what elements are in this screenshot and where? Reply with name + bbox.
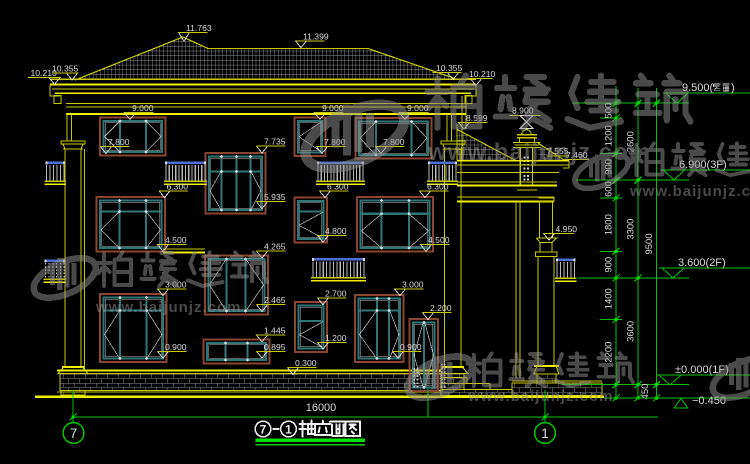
svg-text:10.355: 10.355 [436, 63, 463, 73]
svg-text:7: 7 [70, 426, 78, 441]
svg-text:www.baijunjz.com: www.baijunjz.com [629, 183, 750, 200]
svg-text:6.300: 6.300 [327, 181, 349, 191]
svg-text:10.355: 10.355 [52, 64, 79, 74]
svg-text:3300: 3300 [626, 219, 637, 240]
svg-text:2.465: 2.465 [264, 295, 286, 305]
svg-text:0.895: 0.895 [264, 342, 286, 352]
svg-text:7: 7 [260, 423, 267, 437]
svg-text:4.800: 4.800 [325, 226, 347, 236]
svg-text:6.300: 6.300 [167, 181, 189, 191]
svg-text:0.900: 0.900 [165, 342, 187, 352]
svg-text:3600: 3600 [626, 321, 637, 342]
svg-text:9500: 9500 [644, 233, 655, 254]
svg-text:4.500: 4.500 [165, 235, 187, 245]
svg-text:2.200: 2.200 [430, 303, 452, 313]
svg-text:3.000: 3.000 [402, 279, 424, 289]
svg-text:11.763: 11.763 [186, 23, 212, 33]
svg-text:450: 450 [640, 384, 651, 400]
svg-text:1400: 1400 [604, 288, 615, 309]
svg-text:7.800: 7.800 [108, 137, 130, 147]
svg-text:5.935: 5.935 [264, 192, 286, 202]
svg-text:0.900: 0.900 [400, 342, 422, 352]
svg-text:1: 1 [285, 423, 292, 437]
svg-text:1800: 1800 [604, 214, 615, 235]
svg-text:0.300: 0.300 [295, 358, 317, 368]
svg-text:9.000: 9.000 [132, 103, 154, 113]
svg-text:16000: 16000 [306, 402, 337, 414]
svg-text:): ) [731, 82, 735, 94]
svg-text:6.300: 6.300 [427, 181, 449, 191]
svg-text:2.700: 2.700 [325, 288, 347, 298]
svg-text:1.200: 1.200 [325, 333, 347, 343]
svg-text:10.210: 10.210 [469, 69, 496, 79]
svg-text:1.445: 1.445 [264, 326, 286, 336]
svg-text:4.265: 4.265 [264, 242, 286, 252]
svg-text:3.600(2F): 3.600(2F) [678, 257, 726, 269]
svg-text:11.399: 11.399 [303, 31, 329, 41]
svg-text:www.baijunjz.com: www.baijunjz.com [95, 299, 241, 316]
svg-text:9.000: 9.000 [407, 103, 429, 113]
svg-text:1: 1 [541, 426, 549, 441]
svg-text:900: 900 [604, 257, 615, 273]
svg-text:7.735: 7.735 [264, 137, 286, 147]
svg-text:www.baijunjz.com: www.baijunjz.com [467, 388, 613, 405]
svg-text:4.950: 4.950 [556, 224, 578, 234]
svg-text:4.500: 4.500 [428, 235, 450, 245]
